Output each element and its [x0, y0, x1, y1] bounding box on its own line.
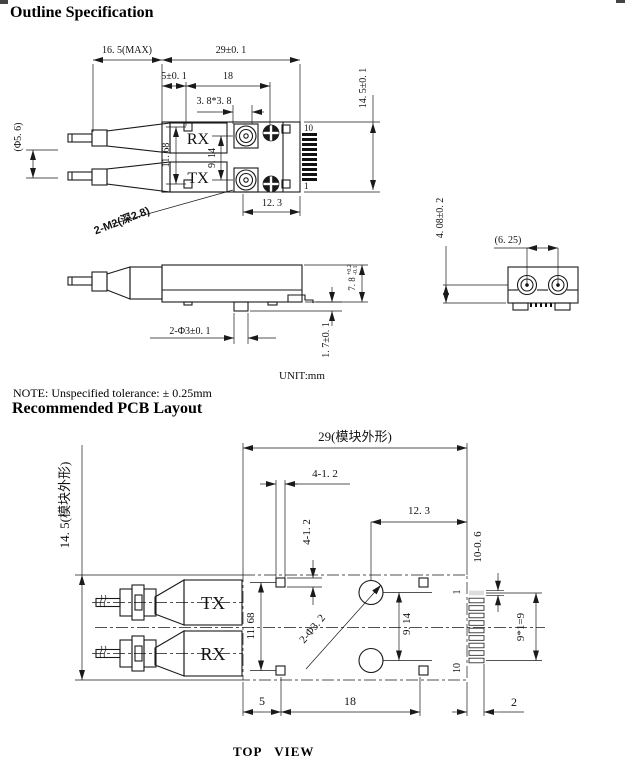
pin-number-bottom: 1	[304, 181, 309, 191]
dim-side-height: 7. 8 +0.2 -0.1	[347, 264, 359, 291]
outline-side-view: 2-Φ3±0. 1 1. 7±0. 1 7. 8 +0.2 -0.1 UNIT:…	[68, 264, 368, 382]
screw-upper	[263, 125, 279, 141]
dim-port-pitch: (6. 25)	[495, 235, 522, 246]
osa-boss-upper	[234, 124, 258, 148]
pcb-layout-view: 29(模块外形) 14. 5(模块外形) TX	[57, 429, 545, 716]
mounting-hole-lower	[359, 649, 383, 673]
pcb-pin-first: 1	[452, 590, 463, 595]
dim-boot-length: 16. 5(MAX)	[102, 45, 152, 56]
dim-pads-vertical: 11. 68	[161, 143, 172, 168]
dim-pcb-holes-vertical: 9. 14	[401, 613, 413, 636]
svg-text:-0.1: -0.1	[353, 266, 359, 276]
dim-pad-to-pad: 18	[344, 694, 356, 708]
unit-label: UNIT:mm	[279, 370, 325, 382]
holes-callout: 2-Φ3. 2	[297, 612, 328, 646]
dim-pcb-width: 29(模块外形)	[318, 429, 392, 444]
dim-boot-diameter: (Φ5. 6)	[13, 123, 24, 152]
screw-lower	[263, 176, 279, 192]
dim-body-length: 29±0. 1	[216, 45, 247, 56]
dim-pcb-height: 14. 5(模块外形)	[57, 462, 72, 549]
dim-pad-overhang: 2	[511, 695, 517, 709]
mounting-hole-upper	[359, 581, 383, 605]
pin-row	[302, 133, 317, 181]
dim-offset: 5±0. 1	[161, 71, 187, 82]
port-label-rx: RX	[187, 131, 210, 148]
dim-pin-pitch: 9*1=9	[515, 612, 527, 641]
dim-boss-size: 3. 8*3. 8	[197, 96, 232, 107]
svg-text:7. 8: 7. 8	[347, 277, 357, 291]
dim-pcb-pads-vertical: 11. 68	[245, 612, 257, 640]
port-label-tx: TX	[187, 170, 209, 187]
module-body-side	[162, 265, 302, 302]
dim-posts: 2-Φ3±0. 1	[169, 326, 210, 337]
dim-pad-width: 4-1. 2	[312, 468, 338, 480]
dim-port-height: 4. 08±0. 2	[435, 198, 446, 239]
pcb-pin-last: 10	[452, 663, 463, 673]
dim-pin-pad: 10-0. 6	[472, 531, 484, 563]
dim-body-height: 14. 5±0. 1	[358, 68, 369, 109]
pcb-label-rx: RX	[200, 644, 225, 664]
dim-ports-vertical: 9. 14	[207, 148, 218, 168]
technical-drawing: 16. 5(MAX) 29±0. 1 5±0. 1 18 3. 8*3. 8 R…	[0, 0, 625, 770]
dim-hole-to-edge: 12. 3	[408, 505, 431, 517]
pcb-label-tx: TX	[201, 593, 225, 613]
pin-number-top: 10	[304, 123, 314, 133]
outline-top-view: 16. 5(MAX) 29±0. 1 5±0. 1 18 3. 8*3. 8 R…	[13, 45, 380, 237]
screw-callout: 2-M2(深2.8)	[92, 203, 152, 237]
osa-boss-lower	[234, 168, 258, 192]
pcb-pin-pads	[469, 591, 484, 663]
dim-post-height: 1. 7±0. 1	[321, 322, 332, 358]
dim-edge-to-pad: 5	[259, 694, 265, 708]
dim-inner-length: 18	[223, 71, 233, 82]
outline-end-view: (6. 25) 4. 08±0. 2	[435, 198, 578, 310]
dim-pad-height: 4-1. 2	[301, 519, 313, 545]
mounting-post	[234, 302, 248, 311]
datasheet-page: Outline Specification NOTE: Unspecified …	[0, 0, 625, 770]
dim-right-offset: 12. 3	[262, 198, 282, 209]
